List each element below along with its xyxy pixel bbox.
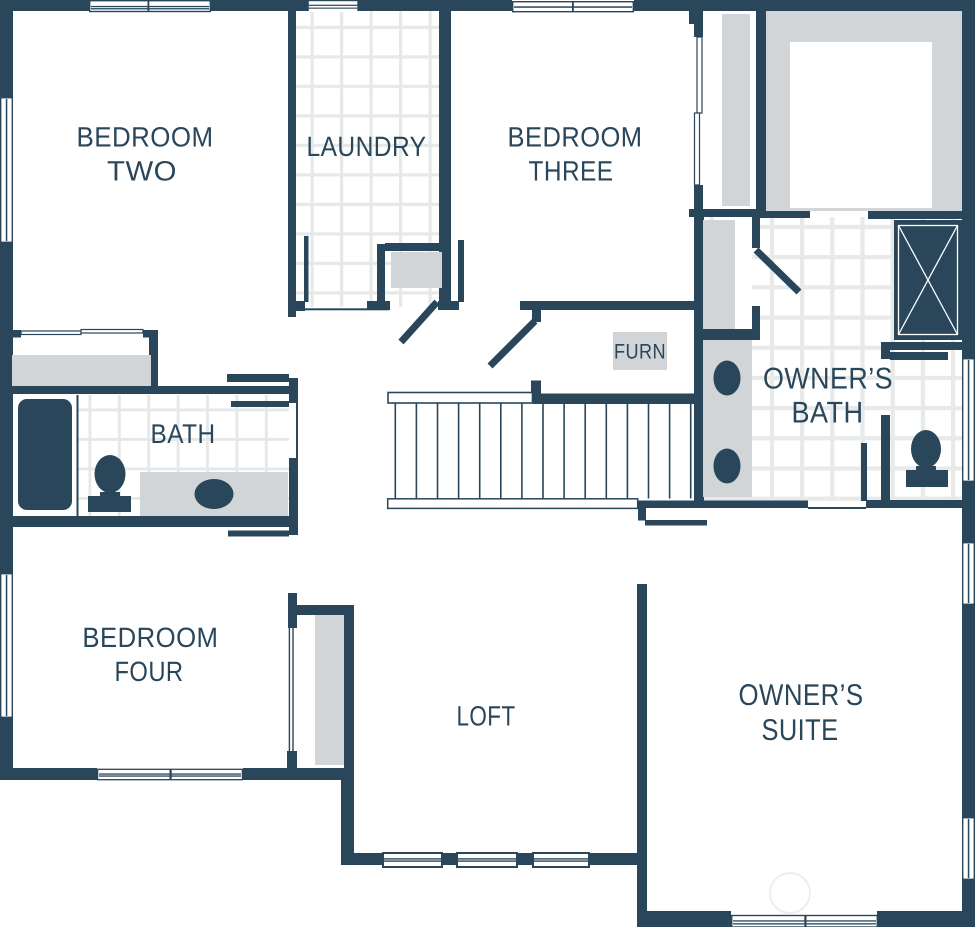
- svg-text:FOUR: FOUR: [115, 656, 184, 687]
- svg-text:BEDROOM: BEDROOM: [77, 122, 214, 153]
- svg-text:TWO: TWO: [107, 156, 177, 187]
- svg-text:OWNER’S: OWNER’S: [763, 363, 893, 396]
- svg-text:BEDROOM: BEDROOM: [508, 122, 643, 153]
- svg-text:THREE: THREE: [529, 156, 614, 187]
- svg-text:FURN: FURN: [614, 341, 666, 364]
- svg-text:BEDROOM: BEDROOM: [82, 622, 218, 653]
- svg-text:SUITE: SUITE: [762, 714, 839, 747]
- svg-text:BATH: BATH: [792, 397, 864, 430]
- svg-text:LAUNDRY: LAUNDRY: [307, 131, 427, 162]
- svg-text:OWNER’S: OWNER’S: [739, 679, 864, 712]
- svg-text:BATH: BATH: [151, 419, 216, 449]
- svg-text:LOFT: LOFT: [457, 701, 516, 732]
